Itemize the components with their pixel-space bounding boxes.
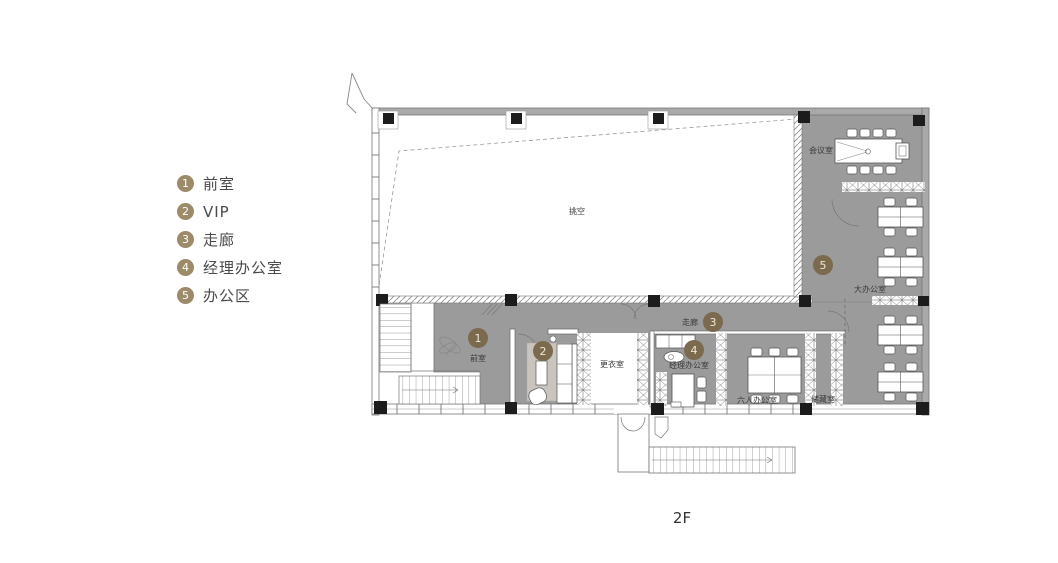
svg-text:5: 5 xyxy=(820,259,827,272)
svg-text:1: 1 xyxy=(475,332,482,345)
vip-west-wall xyxy=(510,329,515,405)
manager-office-west-wall xyxy=(650,331,654,407)
column xyxy=(511,113,522,124)
column xyxy=(913,115,925,126)
column xyxy=(651,403,664,415)
south-window-ticks-2 xyxy=(519,404,614,414)
vip-vase xyxy=(550,336,556,342)
column xyxy=(800,403,812,415)
floor-tag: 2F xyxy=(673,509,691,527)
column xyxy=(648,295,660,307)
cabinet-end-column xyxy=(918,296,929,306)
svg-text:4: 4 xyxy=(691,344,698,357)
conference-table xyxy=(835,139,902,163)
column xyxy=(374,401,387,414)
six-person-office-label: 六人办公室 xyxy=(737,395,777,405)
corridor-label: 走廊 xyxy=(682,317,698,327)
six-office-west-closet xyxy=(716,333,727,406)
changing-room-floor xyxy=(591,333,637,405)
column xyxy=(383,113,394,124)
column xyxy=(505,294,517,306)
office-mid-cabinet xyxy=(872,296,918,305)
entry-opening xyxy=(614,405,650,414)
void-edge-dashed-line xyxy=(378,119,797,292)
void-area: 挑空 xyxy=(378,119,797,292)
west-window-ticks xyxy=(372,120,379,292)
meeting-room-label: 会议室 xyxy=(809,145,833,155)
page: 1 前室 2 VIP 3 走廊 4 经理办公室 5 办公区 xyxy=(0,0,1058,563)
entry-door-leaf xyxy=(655,417,668,438)
south-window-ticks-1 xyxy=(387,404,505,414)
vip-sofa xyxy=(557,344,572,403)
void-label: 挑空 xyxy=(569,206,585,216)
svg-text:3: 3 xyxy=(710,316,717,329)
changing-room-label: 更衣室 xyxy=(600,359,624,369)
mid-hatched-wall xyxy=(378,296,812,303)
atrium-east-hatched-wall xyxy=(794,115,802,297)
vip-wardrobe xyxy=(577,333,591,405)
floor-plan: 挑空 xyxy=(0,0,1058,563)
column xyxy=(505,402,517,414)
head-chair xyxy=(896,143,909,159)
vip-coffee-table xyxy=(536,361,547,385)
column xyxy=(799,295,811,307)
large-office-label: 大办公室 xyxy=(854,284,886,294)
manager-office-label: 经理办公室 xyxy=(669,360,709,370)
front-room-label: 前室 xyxy=(470,353,486,363)
guest-chair xyxy=(697,391,706,402)
column xyxy=(916,402,929,415)
exterior-entry xyxy=(618,414,795,473)
changing-room-closet xyxy=(637,333,648,405)
column xyxy=(798,111,810,123)
meeting-room-cabinet xyxy=(842,182,925,192)
manager-office-closet xyxy=(656,372,667,406)
vip-north-wall xyxy=(548,329,578,334)
roof-gutter-detail xyxy=(347,73,373,113)
manager-chair xyxy=(697,377,706,388)
svg-text:2: 2 xyxy=(540,345,547,358)
hatched-walls xyxy=(378,115,812,303)
column xyxy=(653,113,664,124)
storage-label: 储藏室 xyxy=(811,394,835,404)
